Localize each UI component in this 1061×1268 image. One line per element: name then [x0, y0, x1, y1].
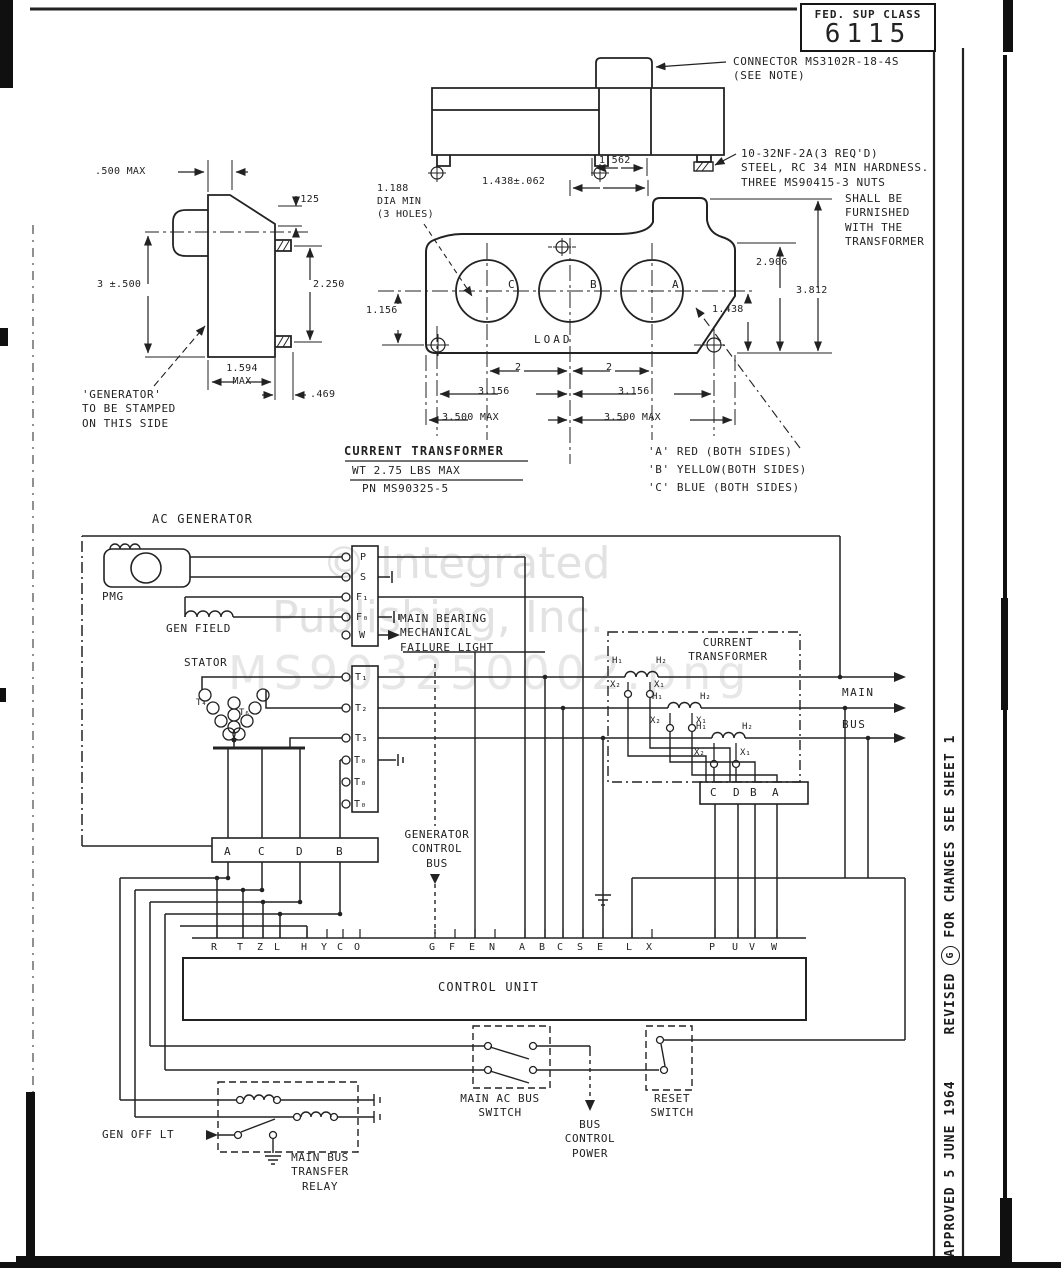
cu-terminal-18: X [646, 941, 652, 954]
revised-label: REVISED [943, 973, 958, 1035]
dim-stud-spacing: 2.250 [313, 278, 345, 291]
ct3-h2-label: H₂ [742, 722, 753, 734]
cu-terminal-22: W [771, 941, 777, 954]
bus-control-power-label: BUS CONTROL POWER [556, 1118, 624, 1161]
load-label: LOAD [534, 333, 573, 347]
gen-off-lt-label: GEN OFF LT [102, 1128, 174, 1142]
terminal-t0a: T₀ [354, 754, 367, 767]
cu-terminal-16: E [597, 941, 603, 954]
scan-mark [1001, 598, 1008, 710]
main-label: MAIN [842, 686, 875, 700]
scan-mark [0, 328, 8, 346]
dim-side-step: .125 [294, 193, 319, 206]
main-ac-bus-switch-label: MAIN AC BUS SWITCH [452, 1092, 548, 1121]
ct1-h2-label: H₂ [656, 656, 667, 668]
fed-sup-class-box: FED. SUP CLASS 6115 [800, 3, 936, 52]
terminal-t2: T₂ [355, 702, 368, 715]
ct3-x2-label: X₂ [694, 748, 705, 760]
part-weight: WT 2.75 LBS MAX [352, 464, 460, 478]
dim-front-h1: 2.906 [756, 256, 788, 269]
stamp-note: 'GENERATOR' TO BE STAMPED ON THIS SIDE [82, 388, 176, 431]
ct-strip-d: D [733, 786, 740, 800]
ct1-h1-label: H₁ [612, 656, 623, 668]
color-code-a: 'A' RED (BOTH SIDES) [648, 445, 792, 459]
ct-strip-c: C [710, 786, 717, 800]
terminal-t3: T₃ [355, 732, 368, 745]
dim-top-width: 1.562 [599, 154, 631, 167]
cu-terminal-20: U [732, 941, 738, 954]
ct2-h1-label: H₁ [652, 692, 663, 704]
lower-strip-d: D [296, 845, 303, 859]
revision-note: APPROVED 5 JUNE 1964 REVISED G FOR CHANG… [937, 699, 963, 1257]
ct-title: CURRENT TRANSFORMER [662, 636, 794, 665]
dim-side-width: 1.594 MAX [216, 362, 268, 388]
ct2-x2-label: X₂ [650, 716, 661, 728]
gen-field-label: GEN FIELD [166, 622, 231, 636]
gen-control-bus-label: GENERATOR CONTROL BUS [399, 828, 475, 871]
hole-label-b: B [590, 278, 597, 292]
hole-label-a: A [672, 278, 679, 292]
scan-mark [1003, 0, 1013, 52]
terminal-s: S [360, 571, 366, 584]
terminal-t1: T₁ [355, 671, 368, 684]
cu-terminal-11: N [489, 941, 495, 954]
stator-coil-t6: T₆ [239, 708, 250, 720]
reset-switch-label: RESET SWITCH [640, 1092, 704, 1121]
stator-label: STATOR [184, 656, 227, 670]
lower-strip-c: C [258, 845, 265, 859]
cu-terminal-8: G [429, 941, 435, 954]
pmg-label: PMG [102, 590, 124, 604]
revision-letter-badge: G [941, 946, 960, 965]
connector-callout: CONNECTOR MS3102R-18-4S (SEE NOTE) [733, 55, 899, 84]
stud-callout: 10-32NF-2A(3 REQ'D) STEEL, RC 34 MIN HAR… [741, 147, 929, 190]
drawing-linework [0, 0, 1061, 1268]
cu-terminal-15: S [577, 941, 583, 954]
ct3-h1-label: H₁ [696, 722, 707, 734]
cu-terminal-13: B [539, 941, 545, 954]
furnished-note: SHALL BE FURNISHED WITH THE TRANSFORMER [845, 192, 924, 249]
scanned-spec-sheet: © Integrated Publishing, Inc. MS90325000… [0, 0, 1061, 1268]
scan-mark [26, 1092, 35, 1260]
dim-max-right: 3.500 MAX [604, 411, 661, 424]
dim-front-left: 1.156 [366, 304, 398, 317]
bus-label: BUS [842, 718, 866, 732]
ct-strip-b: B [750, 786, 757, 800]
terminal-f1: F₁ [356, 591, 369, 604]
cu-terminal-1: T [237, 941, 243, 954]
cu-terminal-4: H [301, 941, 307, 954]
part-number: PN MS90325-5 [362, 482, 449, 496]
ct1-x2-label: X₂ [610, 680, 621, 692]
hole-note: 1.188 DIA MIN (3 HOLES) [377, 182, 434, 221]
cu-terminal-14: C [557, 941, 563, 954]
dim-top-offset: 1.438±.062 [482, 175, 545, 188]
for-changes-note: FOR CHANGES SEE SHEET 1 [943, 735, 958, 938]
cu-terminal-7: O [354, 941, 360, 954]
control-unit-label: CONTROL UNIT [438, 980, 539, 996]
cu-terminal-2: Z [257, 941, 263, 954]
lower-strip-b: B [336, 845, 343, 859]
dim-max-left: 3.500 MAX [442, 411, 499, 424]
dim-front-h2: 3.812 [796, 284, 828, 297]
dim-front-right: 1.438 [712, 303, 744, 316]
dim-span-left: 3.156 [478, 385, 510, 398]
ac-generator-label: AC GENERATOR [152, 512, 253, 528]
cu-terminal-12: A [519, 941, 525, 954]
top-view-lines [428, 58, 736, 196]
terminal-w: W [359, 629, 365, 642]
cu-terminal-9: F [449, 941, 455, 954]
failure-light-label: MAIN BEARING MECHANICAL FAILURE LIGHT [400, 612, 494, 655]
front-view-lines [345, 198, 832, 480]
cu-terminal-10: E [469, 941, 475, 954]
scan-mark [0, 688, 6, 702]
part-title: CURRENT TRANSFORMER [344, 444, 504, 460]
cu-terminal-3: L [274, 941, 280, 954]
cu-terminal-19: P [709, 941, 715, 954]
dim-pitch-right: 2 [606, 361, 612, 374]
color-code-b: 'B' YELLOW(BOTH SIDES) [648, 463, 807, 477]
cu-terminal-17: L [626, 941, 632, 954]
lower-strip-a: A [224, 845, 231, 859]
dim-pitch-left: 2 [515, 361, 521, 374]
terminal-t0b: T₀ [354, 776, 367, 789]
color-code-c: 'C' BLUE (BOTH SIDES) [648, 481, 800, 495]
ct2-h2-label: H₂ [700, 692, 711, 704]
cu-terminal-21: V [749, 941, 755, 954]
cu-terminal-0: R [211, 941, 217, 954]
ct3-x1-label: X₁ [740, 748, 751, 760]
cu-terminal-5: Y [321, 941, 327, 954]
hole-label-c: C [508, 278, 515, 292]
terminal-t0c: T₀ [354, 798, 367, 811]
stator-coil-t4: T₄ [196, 698, 207, 710]
dim-stud-length: .469 [310, 388, 335, 401]
cu-terminal-6: C [337, 941, 343, 954]
fed-sup-class-value: 6115 [802, 21, 934, 47]
dim-side-height: 3 ±.500 [97, 278, 141, 291]
transfer-relay-label: MAIN BUS TRANSFER RELAY [278, 1151, 362, 1194]
scan-mark [0, 0, 13, 88]
terminal-f0: F₀ [356, 611, 369, 624]
dim-side-offset: .500 MAX [95, 165, 146, 178]
scan-mark [1000, 1198, 1012, 1268]
approved-date: APPROVED 5 JUNE 1964 [943, 1080, 958, 1257]
terminal-p: P [360, 551, 366, 564]
ct1-x1-label: X₁ [654, 680, 665, 692]
dim-span-right: 3.156 [618, 385, 650, 398]
ct-strip-a: A [772, 786, 779, 800]
scan-mark [0, 1262, 1061, 1268]
